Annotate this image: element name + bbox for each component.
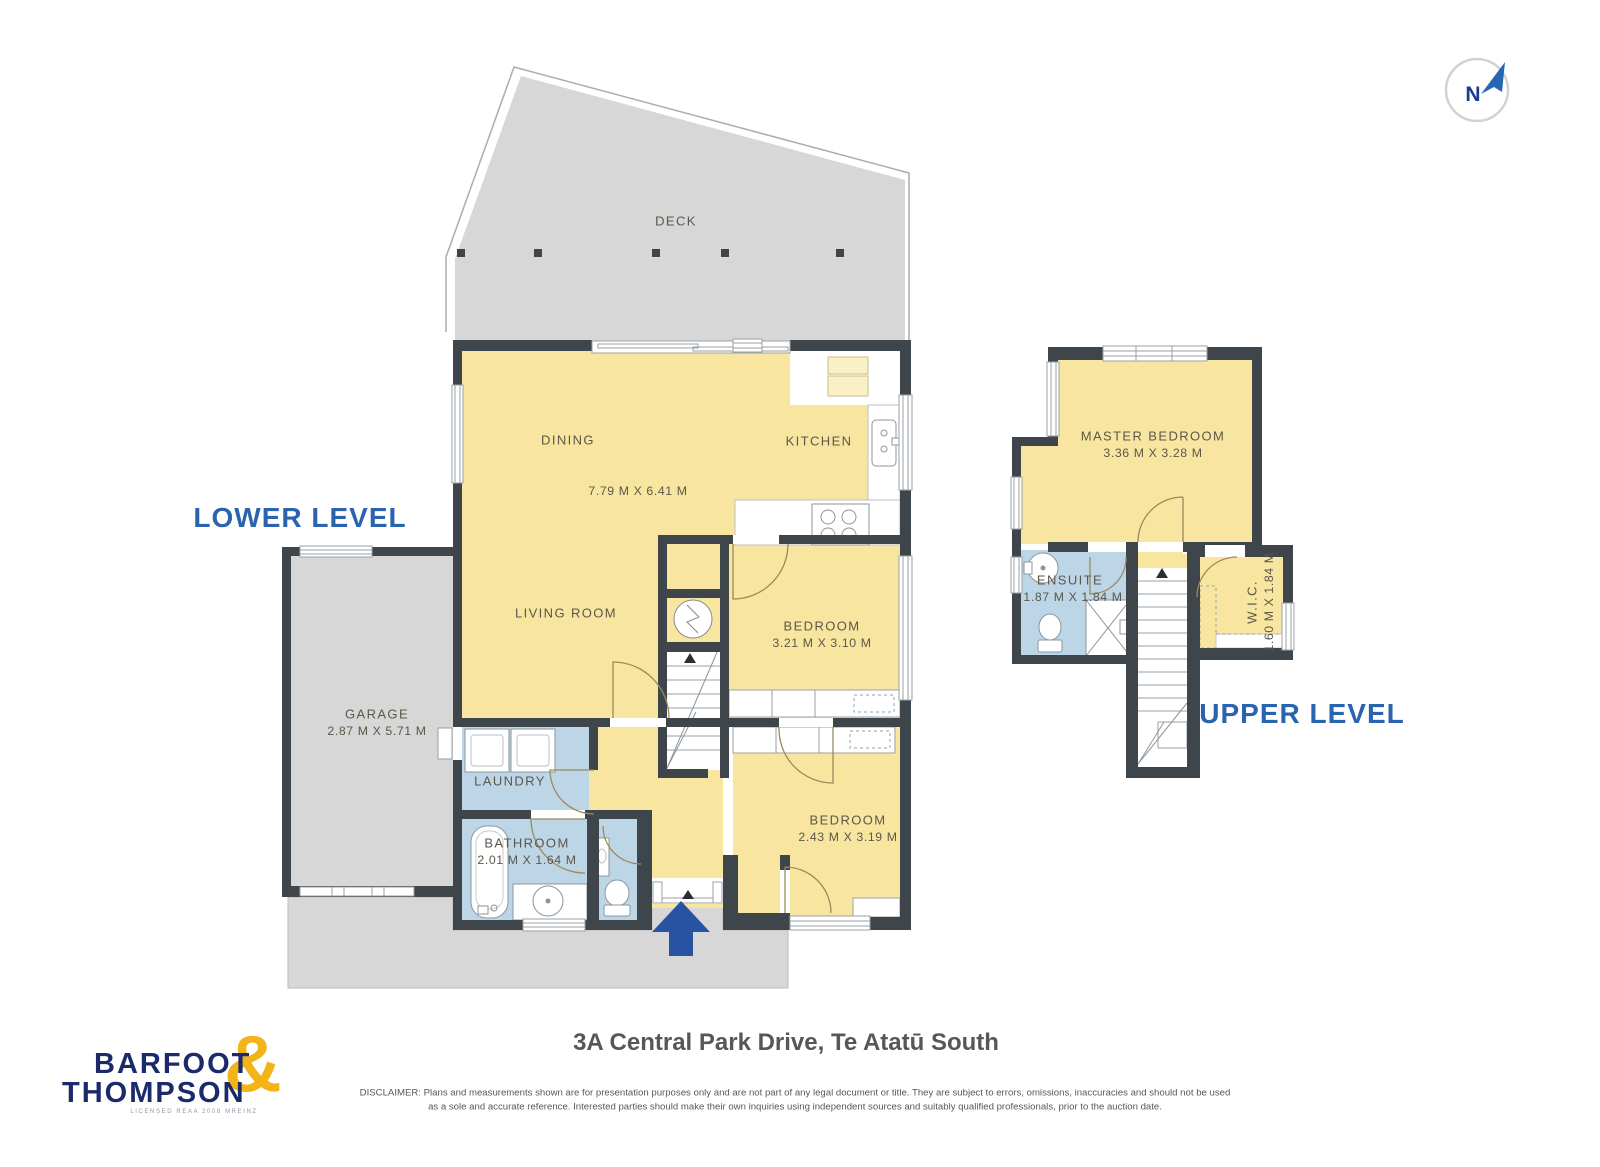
window [899,556,912,700]
bedroom-mid-label: BEDROOM [784,619,861,634]
window [523,919,585,931]
window [1047,362,1059,436]
bedroom-front-label: BEDROOM [810,813,887,828]
deck-post [534,249,542,257]
floor-plan-graphics [0,0,1600,1167]
window [899,395,912,490]
ensuite-tap [1024,562,1032,574]
window [733,339,762,352]
entry-sidelight [653,882,662,903]
bedroom-front-nook [738,855,780,913]
compass-north-letter: N [1465,83,1480,107]
ensuite-toilet-bowl [1039,614,1061,640]
bathroom-dims: 2.01 M X 1.64 M [477,853,576,867]
garage-door-leaf [438,728,452,759]
entry-sidelight [713,882,722,903]
upper-level-label: UPPER LEVEL [1199,698,1404,730]
kitchen-cabinet [828,376,868,396]
toilet-bowl [605,880,629,906]
deck-post [457,249,465,257]
disclaimer-line2: as a sole and accurate reference. Intere… [428,1102,1162,1113]
window [452,385,463,483]
kitchen-label: KITCHEN [786,434,853,449]
garage-dims: 2.87 M X 5.71 M [327,724,426,738]
window [300,546,372,557]
lower-stairs [667,598,720,770]
open-plan-dims: 7.79 M X 6.41 M [588,484,687,498]
window [1011,477,1022,529]
deck-post [721,249,729,257]
window [1103,346,1207,361]
landing-floor [1138,554,1187,568]
deck-area [446,67,909,343]
wic-label: W.I.C. [1245,580,1260,624]
dining-label: DINING [541,433,595,448]
master-annex-floor [1021,444,1058,544]
deck-label: DECK [655,214,697,229]
window [790,916,870,930]
bathroom-label: BATHROOM [484,836,569,851]
window-seat [853,898,900,917]
kitchen-cabinet [828,357,868,374]
brand-name-line2: THOMPSON [62,1077,246,1110]
deck-post [836,249,844,257]
ensuite-dims: 1.87 M X 1.84 M [1023,590,1122,604]
deck-post [652,249,660,257]
disclaimer-line1: DISCLAIMER: Plans and measurements shown… [360,1088,1231,1099]
upper-stairs [1138,568,1187,767]
floorplan-page: DECK DINING 7.79 M X 6.41 M KITCHEN LIVI… [0,0,1600,1167]
bedroom-mid-dims: 3.21 M X 3.10 M [772,636,871,650]
ensuite-label: ENSUITE [1037,573,1103,588]
garage-label: GARAGE [345,707,409,722]
ensuite-toilet-cistern [1038,640,1062,652]
toilet-cistern [604,905,630,916]
laundry-label: LAUNDRY [474,774,546,789]
garage-door [300,887,414,896]
wic-dims: 1.60 M X 1.84 M [1262,552,1276,651]
master-bedroom-dims: 3.36 M X 3.28 M [1103,446,1202,460]
lower-level-label: LOWER LEVEL [193,502,406,534]
living-room-label: LIVING ROOM [515,606,617,621]
master-bedroom-label: MASTER BEDROOM [1081,429,1226,444]
window [1011,557,1022,593]
bedroom-front-dims: 2.43 M X 3.19 M [798,830,897,844]
property-address: 3A Central Park Drive, Te Atatū South [573,1029,999,1057]
window [1282,603,1294,650]
